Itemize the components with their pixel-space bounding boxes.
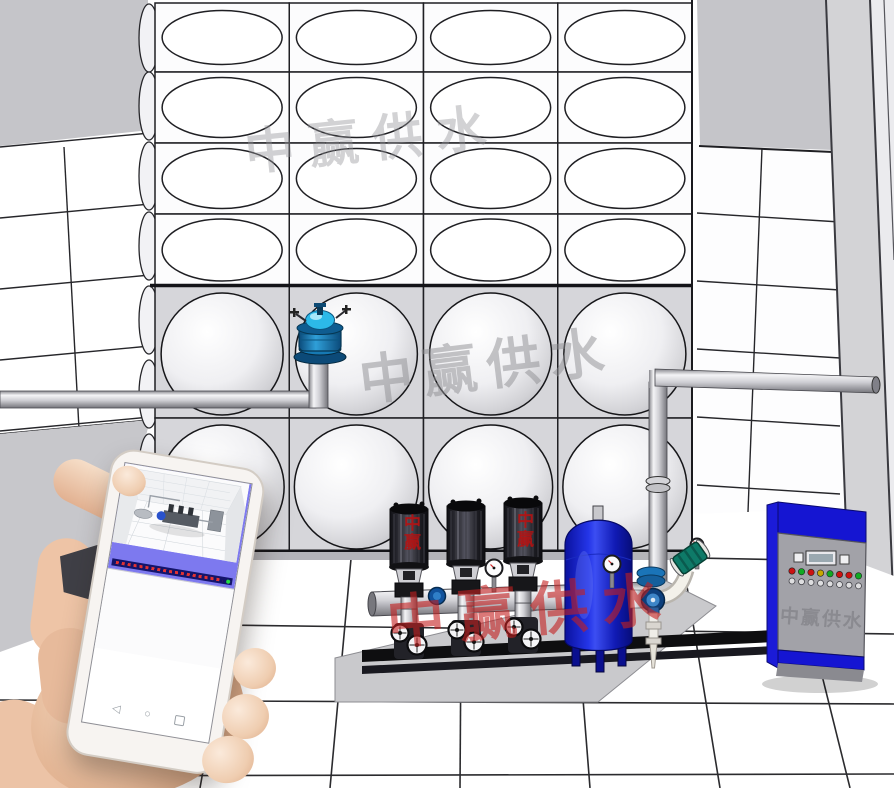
indicator-light (836, 571, 842, 577)
indicator-light (855, 573, 861, 579)
pressure-tank (565, 506, 632, 672)
cabinet-button (846, 582, 852, 588)
pipe-end-cap (872, 377, 880, 393)
tank-panel-dome (564, 293, 686, 415)
cabinet-switch (840, 555, 849, 564)
tank-panel-dimple (565, 149, 685, 209)
cabinet-button (837, 582, 843, 588)
home-icon[interactable]: ○ (143, 709, 151, 721)
tank-panel-dimple (565, 11, 685, 65)
tank-panel-dimple (431, 149, 551, 209)
tank-panel-dimple (565, 219, 685, 281)
cabinet-button (799, 579, 805, 585)
manifold-valve (429, 588, 446, 605)
status-ok-dot (226, 579, 231, 584)
tank-panel-dimple (296, 149, 416, 209)
tank-panel-dimple (431, 219, 551, 281)
indicator-light (789, 568, 795, 574)
cabinet-button (789, 578, 795, 584)
back-icon[interactable]: ◁ (111, 703, 121, 715)
tank-panel-dome (430, 293, 552, 415)
tank-panel-dimple (431, 78, 551, 138)
tank-panel-dimple (296, 11, 416, 65)
tank-panel-dimple (162, 78, 282, 138)
tank-panel-dimple (162, 219, 282, 281)
cabinet-button (818, 580, 824, 586)
indicator-light (827, 571, 833, 577)
indicator-light (798, 569, 804, 575)
pump1-brand-mark: 中赢 (398, 514, 423, 552)
cabinet-button (856, 583, 862, 589)
pump3-brand-mark: 中赢 (511, 511, 536, 549)
indicator-light (808, 569, 814, 575)
tank-panel-dimple (431, 11, 551, 65)
cabinet-button (808, 579, 814, 585)
indicator-light (846, 572, 852, 578)
indicator-light (817, 570, 823, 576)
recents-icon[interactable] (173, 715, 185, 727)
tank-panel-dimple (296, 78, 416, 138)
tank-panel-dimple (296, 219, 416, 281)
control-cabinet (762, 502, 878, 693)
cabinet-button (827, 581, 833, 587)
tank-panel-dimple (162, 149, 282, 209)
tank-panel-dimple (565, 78, 685, 138)
tank-panel-dimple (162, 11, 282, 65)
pump-room-render: 中赢供水 中赢供水 中赢供水 中赢供水 中赢 中赢 自动状态 智能变频恒压供水控… (0, 0, 894, 788)
right-wall (693, 0, 847, 514)
cabinet-switch (794, 553, 803, 562)
